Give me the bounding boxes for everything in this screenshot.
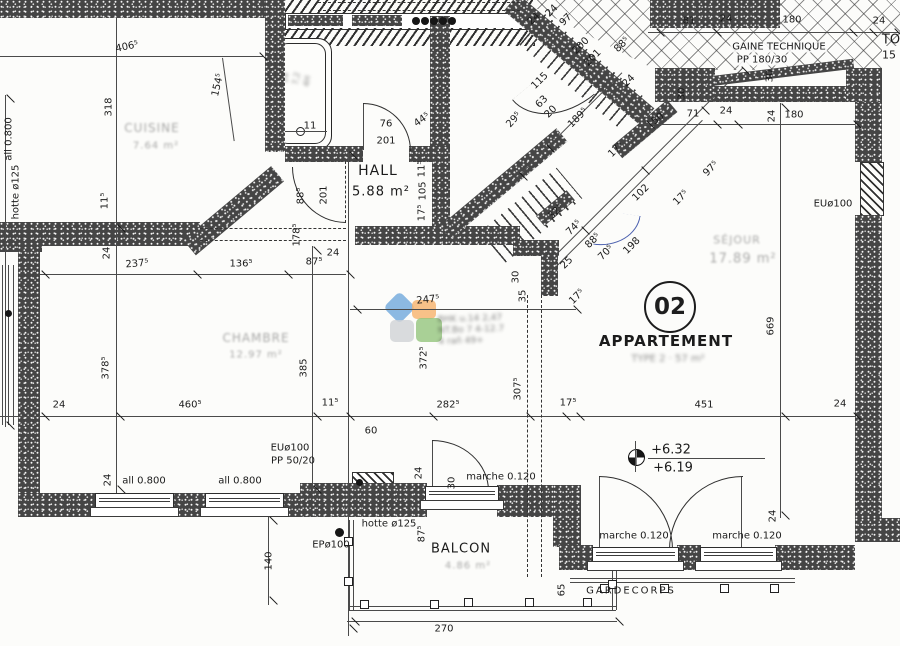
window [95, 493, 174, 508]
handwritten-smudge: BHK u.14 2,47NT.Bo 7 4-12.74 rañ 49+ [437, 313, 504, 348]
dimension-label: 378⁵ [101, 356, 112, 379]
dimension-label: 17⁵ [560, 398, 577, 409]
dimension-label: 247⁵ [416, 293, 440, 306]
room-label: HALL [358, 163, 398, 179]
dimension-label: 17⁵ [671, 188, 691, 208]
dimension-line [222, 58, 235, 141]
dimension-label: 24 [767, 110, 778, 123]
wall-segment [855, 518, 900, 542]
room-label: BALCON [431, 542, 491, 557]
wall-segment [553, 485, 581, 547]
railing-post [464, 598, 473, 607]
dimension-label: 25 [559, 255, 576, 272]
tick-mark [349, 624, 358, 633]
floor-plan-canvas: BHK u.14 2,47NT.Bo 7 4-12.74 rañ 49+ 147… [0, 0, 900, 646]
dimension-label: 17⁵ [417, 205, 428, 222]
wall-segment [355, 226, 520, 245]
wall-segment [650, 0, 780, 28]
duct-fixture-hatch [860, 162, 884, 216]
dimension-label: 24 [53, 400, 66, 411]
annotation-label: hotte ø125 [11, 165, 22, 220]
tick-mark [701, 106, 710, 115]
annotation-label: EPø100 [312, 540, 350, 551]
dimension-label: 140 [264, 551, 275, 570]
level-marker-axis [635, 441, 636, 472]
annotation-label: PP 50/20 [271, 456, 315, 467]
annotation-label: marche 0.120 [466, 472, 536, 483]
dimension-line [349, 520, 350, 610]
wall-segment [18, 246, 40, 497]
wall-segment [855, 215, 882, 520]
dimension-label: 24 [834, 399, 847, 410]
dimension-label: 24 [768, 510, 779, 523]
annotation-label: TO [882, 33, 900, 48]
dimension-label: 201 [376, 136, 395, 147]
dimension-line [13, 265, 14, 425]
wall-segment [18, 493, 98, 517]
dimension-label: 11⁵ [100, 193, 111, 210]
window [700, 547, 777, 562]
drain-marker [356, 479, 363, 486]
wall-segment [300, 483, 350, 517]
dimension-label: 44⁵ [412, 111, 432, 130]
dimension-label: 88⁵ [296, 188, 307, 205]
dimension-label: 24 [327, 248, 340, 259]
dimension-label: 30 [677, 88, 688, 101]
dimension-label: 74⁵ [564, 218, 584, 238]
dimension-label: 60 [365, 426, 378, 437]
tick-mark [313, 246, 322, 255]
wall-segment [0, 0, 265, 18]
annotation-label: PP 180/30 [735, 55, 789, 66]
railing-post [770, 584, 779, 593]
annotation-label: GARDECORPS [586, 586, 676, 597]
dimension-label: 318 [104, 97, 115, 116]
railing-post [720, 584, 729, 593]
dimension-label: 30 [511, 271, 522, 284]
wall-segment [345, 483, 427, 517]
dimension-label: 406⁵ [115, 39, 140, 55]
dimension-label: 24 [414, 467, 425, 480]
dimension-line [116, 18, 117, 494]
annotation-label: +6.19 [653, 461, 693, 476]
window [592, 547, 679, 562]
shelf-circle [439, 17, 447, 25]
dashed-line [527, 295, 528, 577]
shelf-circle [412, 17, 420, 25]
railing-post [430, 600, 439, 609]
dimension-label: 87⁵ [417, 526, 428, 543]
dimension-label: 385 [299, 358, 310, 377]
annotation-label: +6.32 [651, 443, 691, 458]
dimension-label: 180 [784, 110, 803, 121]
wall-segment [432, 146, 450, 230]
dashed-line [318, 2, 520, 3]
dimension-label: 136⁵ [229, 259, 252, 270]
faint-room-label: 4.86 m² [445, 561, 491, 572]
dimension-label: 270 [434, 624, 453, 635]
dimension-line [0, 56, 263, 57]
dimension-label: 11⁵ [322, 398, 339, 409]
dimension-line [0, 416, 856, 417]
dimension-label: 669 [766, 316, 777, 335]
window-sill [200, 507, 289, 517]
dimension-label: 35 [518, 290, 529, 303]
drain-marker [5, 310, 12, 317]
dimension-label: 24 [720, 14, 733, 25]
dimension-label: 24 [102, 247, 113, 260]
wall-segment [430, 16, 450, 152]
level-marker-icon [628, 449, 645, 466]
dimension-label: 70⁵ [596, 243, 616, 263]
dimension-label: 29⁵ [504, 110, 523, 130]
drain-marker [335, 528, 344, 537]
dashed-line [200, 240, 346, 241]
dashed-line [200, 228, 346, 229]
window [425, 486, 499, 501]
wall-segment [183, 166, 284, 255]
dimension-label: 11 [304, 121, 317, 132]
apartment-title: APPARTEMENT [599, 332, 733, 350]
faint-room-label: 12.97 m² [229, 350, 283, 361]
dimension-line [8, 265, 9, 425]
dashed-line [318, 10, 520, 11]
wall-segment [497, 485, 559, 517]
window [205, 493, 284, 508]
tick-mark [6, 94, 15, 103]
dimension-label: 24 [103, 474, 114, 487]
dimension-label: 307⁵ [513, 377, 524, 400]
tick-mark [641, 166, 650, 175]
bathroom-shelf-block [288, 15, 343, 26]
tick-mark [269, 596, 278, 605]
wall-segment [541, 254, 558, 296]
dimension-label: 372⁵ [419, 346, 430, 369]
window-sill [90, 507, 179, 517]
apartment-number-badge: 02 [644, 281, 696, 333]
annotation-label: EUø100 [814, 199, 853, 210]
railing-post [344, 577, 353, 586]
annotation-label: all 0.800 [122, 476, 166, 487]
watermark-piece-blue [383, 291, 416, 324]
dimension-label: 87⁵ [306, 257, 323, 268]
dimension-line [2, 265, 3, 425]
faint-room-label: CUISINE [124, 121, 179, 135]
annotation-label: all 0.800 [218, 476, 262, 487]
dimension-line [350, 309, 576, 310]
dashed-line [541, 295, 542, 577]
faint-room-label: 17.89 m² [709, 252, 776, 267]
shelf-circle [430, 17, 438, 25]
shelf-circle [448, 17, 456, 25]
room-label: 5.88 m² [352, 185, 410, 200]
bathroom-shelf-block [352, 15, 402, 26]
dimension-label: 451 [694, 400, 713, 411]
wall-segment [712, 86, 855, 102]
dimension-line [347, 621, 617, 622]
apartment-number: 02 [654, 294, 686, 320]
wall-segment [30, 222, 200, 246]
dimension-label: 105 [418, 181, 429, 200]
faint-room-label: CHAMBRE [222, 331, 289, 345]
faint-room-label: 7.64 m² [133, 141, 179, 152]
dimension-line [40, 274, 346, 275]
annotation-label: hotte ø125 [362, 519, 417, 530]
dimension-label: 81 [683, 16, 696, 27]
faint-room-label: SÉJOUR [713, 234, 761, 247]
dimension-line [570, 582, 795, 583]
dimension-label: 24 [873, 16, 886, 27]
watermark-piece-gray [390, 320, 414, 342]
dimension-label: 180 [782, 15, 801, 26]
railing-post [360, 600, 369, 609]
dimension-line [353, 520, 354, 610]
window-sill [695, 561, 782, 571]
annotation-label: 15 [882, 49, 896, 62]
window-sill [420, 500, 504, 510]
dimension-line [780, 103, 781, 518]
dimension-line [648, 32, 898, 33]
dimension-label: 178⁵ [292, 223, 303, 246]
annotation-label: all 0.800 [4, 117, 15, 161]
dimension-label: 201 [319, 185, 330, 204]
dimension-label: 65 [557, 584, 568, 597]
dimension-line [349, 610, 616, 611]
dimension-label: 30 [447, 477, 458, 490]
wall-segment [775, 545, 855, 570]
dimension-label: 11⁵ [417, 161, 428, 178]
wall-segment [265, 0, 285, 152]
tick-mark [581, 226, 590, 235]
dimension-line [570, 578, 795, 579]
tick-mark [781, 511, 790, 520]
tick-mark [269, 516, 278, 525]
faint-room-label: TYPE 2 · 57 m² [631, 354, 704, 365]
annotation-label: marche 0.120 [599, 531, 669, 542]
dimension-label: 154⁵ [210, 73, 226, 98]
dimension-line [640, 124, 855, 125]
wall-segment [846, 68, 882, 102]
door-swing [432, 440, 489, 491]
railing-post [525, 598, 534, 607]
dimension-label: 71 [687, 109, 700, 120]
dimension-line [349, 606, 616, 607]
railing-post [583, 598, 592, 607]
dimension-label: 97⁵ [701, 159, 721, 179]
dimension-label: 30 [765, 70, 776, 83]
annotation-label: marche 0.120 [712, 531, 782, 542]
annotation-label: GAINE TECHNIQUE [730, 42, 827, 53]
window-sill [587, 561, 684, 571]
dimension-label: 24 [720, 106, 733, 117]
shelf-circle [421, 17, 429, 25]
dimension-label: 282⁵ [436, 400, 459, 411]
dimension-label: 237⁵ [125, 258, 149, 271]
dimension-label: 102 [630, 182, 651, 203]
annotation-label: EUø100 [271, 443, 310, 454]
dimension-label: 460⁵ [178, 400, 201, 411]
dimension-label: 17⁵ [567, 287, 587, 307]
dimension-label: 76 [380, 119, 393, 130]
dimension-line [648, 458, 765, 459]
